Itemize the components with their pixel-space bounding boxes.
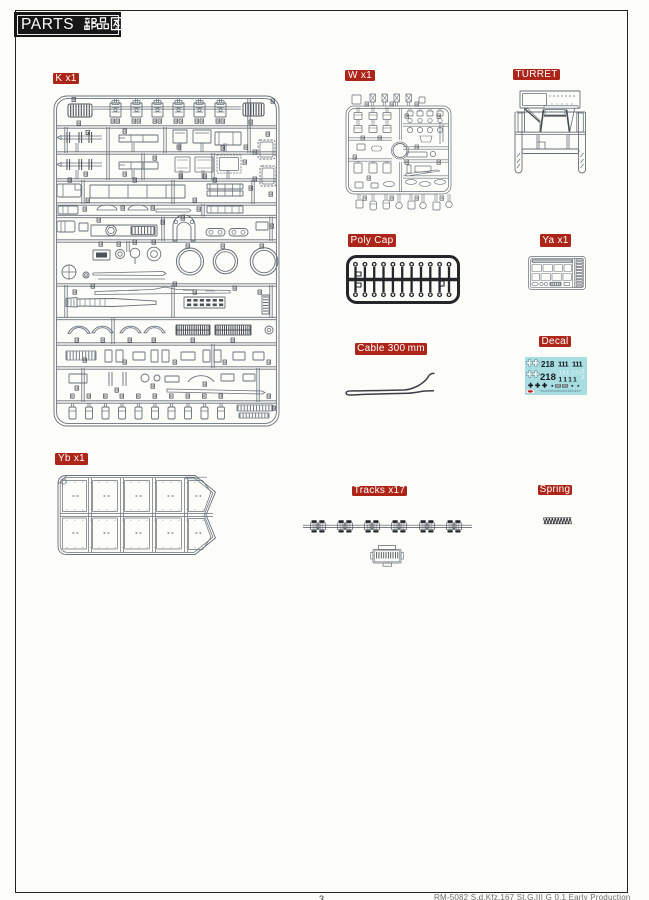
svg-text:1111: 1111	[559, 377, 579, 384]
svg-text:111: 111	[572, 360, 583, 369]
svg-text:218: 218	[540, 372, 556, 383]
svg-text:111: 111	[558, 360, 569, 369]
svg-text:2: 2	[582, 375, 585, 381]
svg-text:218: 218	[541, 360, 555, 369]
